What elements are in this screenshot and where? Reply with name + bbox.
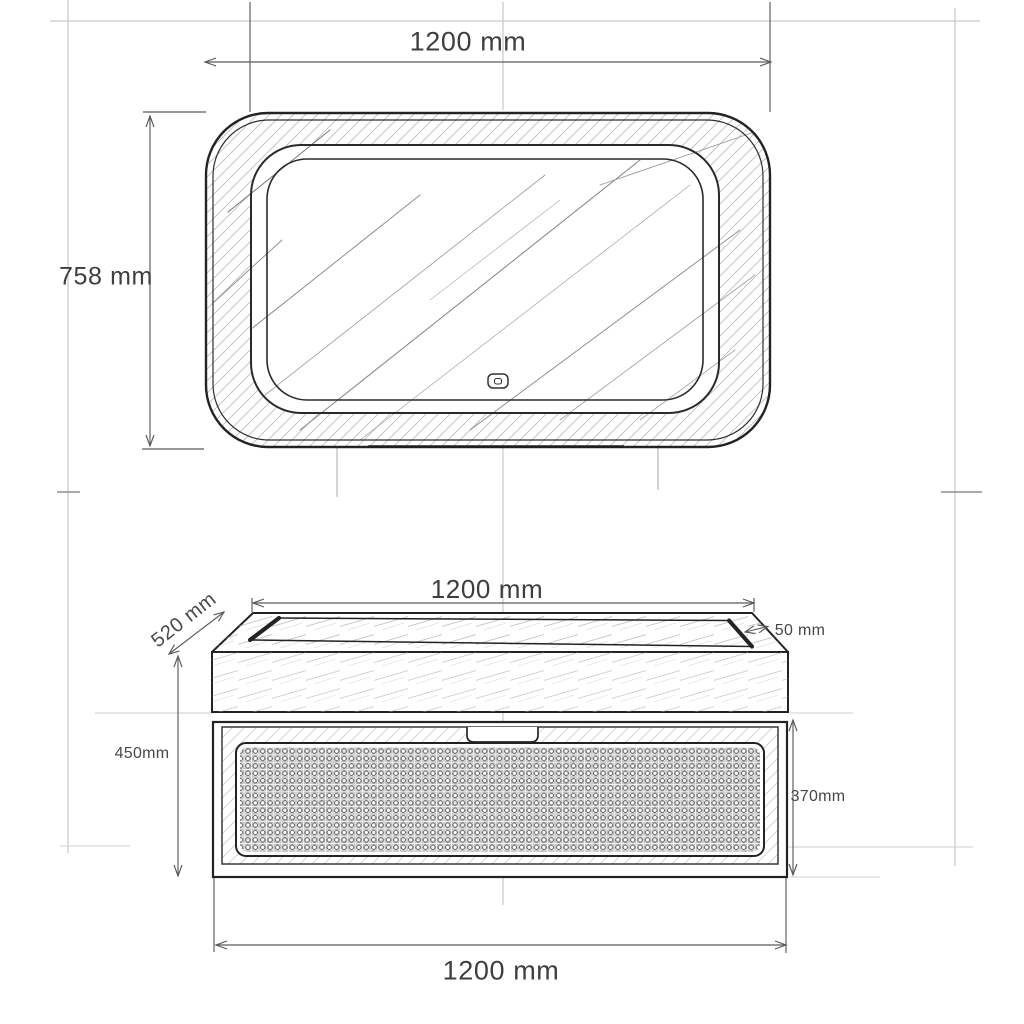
dim-label-mirror-width: 1200 mm xyxy=(410,29,527,56)
dim-label-countertop-width: 1200 mm xyxy=(431,576,544,602)
drawer-handle-notch xyxy=(467,727,538,742)
vanity-drawing xyxy=(212,613,788,877)
mirror-drawing xyxy=(206,113,770,447)
dim-label-countertop-rim: 50 mm xyxy=(775,623,825,639)
technical-drawing-canvas: 1200 mm 758 mm 1200 mm 520 mm 50 mm 450m… xyxy=(0,0,1024,1024)
dim-label-cabinet-width: 1200 mm xyxy=(443,958,560,985)
dim-label-mirror-height: 758 mm xyxy=(59,265,153,290)
dim-label-drawer-height: 370mm xyxy=(791,789,846,805)
dim-label-vanity-height: 450mm xyxy=(115,746,170,762)
drawing-linework xyxy=(0,0,1024,1024)
